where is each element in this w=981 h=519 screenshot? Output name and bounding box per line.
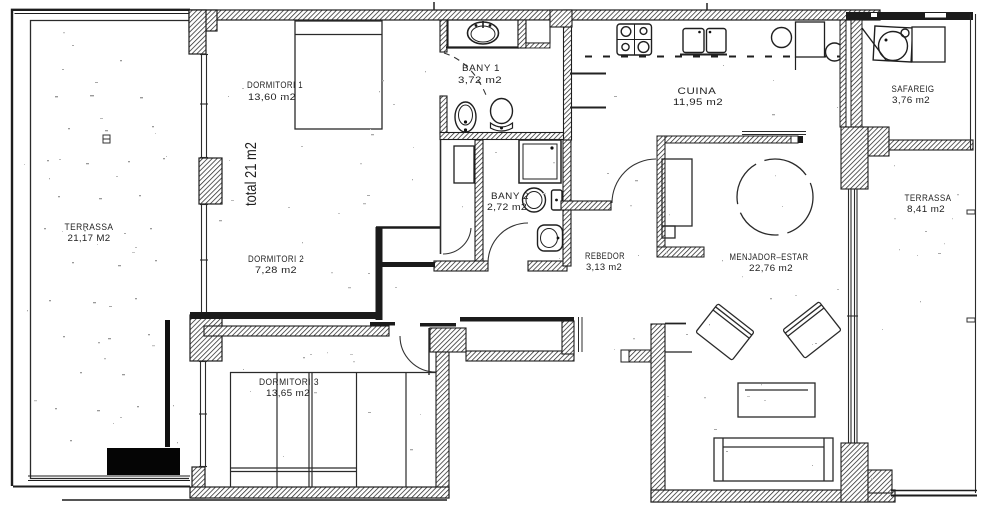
svg-text:8,41 m2: 8,41 m2 — [907, 204, 945, 215]
svg-text:3,76 m2: 3,76 m2 — [892, 95, 930, 106]
svg-text:2,72 m2: 2,72 m2 — [487, 202, 527, 213]
svg-text:TERRASSA: TERRASSA — [65, 222, 114, 233]
svg-text:CUINA: CUINA — [678, 86, 717, 97]
svg-text:DORMITORI 2: DORMITORI 2 — [248, 254, 304, 265]
svg-text:22,76 m2: 22,76 m2 — [749, 263, 793, 274]
svg-text:DORMITORI 3: DORMITORI 3 — [259, 377, 319, 388]
svg-text:11,95 m2: 11,95 m2 — [673, 97, 723, 108]
svg-text:MENJADOR–ESTAR: MENJADOR–ESTAR — [730, 252, 809, 263]
svg-text:BANY 1: BANY 1 — [462, 63, 500, 74]
svg-text:21,17 M2: 21,17 M2 — [68, 233, 111, 244]
svg-text:3,72 m2: 3,72 m2 — [458, 75, 502, 86]
svg-text:total 21 m2: total 21 m2 — [243, 142, 260, 206]
svg-text:3,13 m2: 3,13 m2 — [586, 262, 622, 273]
svg-text:SAFAREIG: SAFAREIG — [892, 84, 935, 95]
svg-text:TERRASSA: TERRASSA — [905, 193, 952, 204]
svg-text:13,65 m2: 13,65 m2 — [266, 388, 310, 399]
svg-text:7,28 m2: 7,28 m2 — [255, 265, 297, 276]
svg-text:13,60 m2: 13,60 m2 — [248, 92, 296, 103]
svg-text:REBEDOR: REBEDOR — [585, 251, 625, 262]
